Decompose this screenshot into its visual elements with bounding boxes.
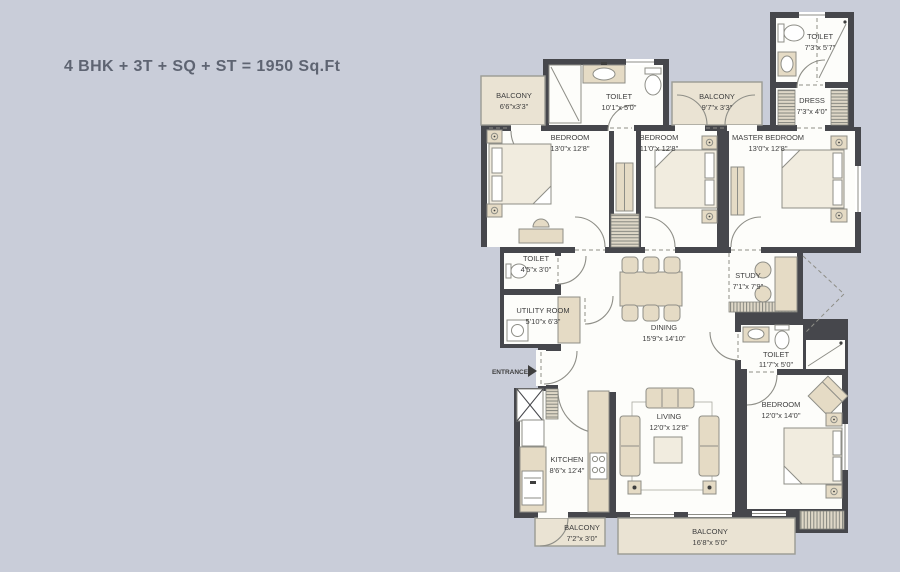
wc-tank-master (778, 24, 784, 42)
dining-chair (664, 257, 680, 273)
window-toilet-master (799, 12, 825, 18)
svg-text:11'0"x 12'8": 11'0"x 12'8" (640, 144, 679, 153)
svg-text:BALCONY: BALCONY (699, 92, 735, 101)
study-desk (775, 257, 797, 311)
svg-text:DRESS: DRESS (799, 96, 825, 105)
tap-kitchen (530, 481, 536, 484)
svg-text:7'2"x 3'0": 7'2"x 3'0" (567, 534, 598, 543)
svg-text:LIVING: LIVING (657, 412, 682, 421)
svg-text:KITCHEN: KITCHEN (551, 455, 584, 464)
dining-furniture (620, 257, 682, 321)
svg-text:STUDY: STUDY (735, 271, 760, 280)
balcony-n-door1-opening (675, 125, 705, 131)
sofa-three-seat (646, 388, 694, 408)
window-living-1 (630, 512, 674, 517)
wardrobe-dress-left (778, 90, 795, 125)
svg-text:10'1"x 5'0": 10'1"x 5'0" (602, 103, 637, 112)
balcony-main (618, 518, 795, 554)
svg-text:13'0"x 12'8": 13'0"x 12'8" (748, 144, 787, 153)
dining-chair (643, 305, 659, 321)
window-living-2 (688, 512, 732, 517)
svg-text:UTILITY ROOM: UTILITY ROOM (516, 306, 569, 315)
kitchen-shaft-hatch (546, 389, 558, 419)
svg-text:TOILET: TOILET (807, 32, 834, 41)
fridge (522, 420, 544, 446)
dining-chair (622, 257, 638, 273)
shower-head-common (839, 341, 842, 344)
wardrobe-bedroom4 (800, 511, 844, 529)
svg-text:13'0"x 12'8": 13'0"x 12'8" (550, 144, 589, 153)
svg-text:12'0"x 12'8": 12'0"x 12'8" (649, 423, 688, 432)
shower-head-master (843, 20, 846, 23)
window-bedroom4-south (752, 511, 786, 516)
pillow (492, 148, 502, 173)
floor-plan-page: 4 BHK + 3T + SQ + ST = 1950 Sq.Ft (0, 0, 900, 572)
wc-master (784, 25, 804, 41)
desk-bedroom1 (519, 229, 563, 243)
pillow (833, 431, 841, 455)
svg-text:7'3"x 5'7": 7'3"x 5'7" (805, 43, 836, 52)
wc-tank-powder (506, 264, 511, 278)
pillow (833, 180, 842, 205)
coffee-table (654, 437, 682, 463)
pillow (833, 153, 842, 178)
svg-text:15'9"x 14'10": 15'9"x 14'10" (642, 334, 686, 343)
dining-chair (622, 305, 638, 321)
entrance-marker: ENTRANCE (492, 365, 537, 377)
balcony-nw (481, 76, 545, 125)
svg-text:8'6"x 12'4": 8'6"x 12'4" (550, 466, 585, 475)
balcony-n-door2-opening (727, 125, 757, 131)
entrance-arrow-icon (528, 365, 537, 377)
svg-text:4'5"x 3'0": 4'5"x 3'0" (521, 265, 552, 274)
svg-text:BALCONY: BALCONY (692, 527, 728, 536)
svg-text:TOILET: TOILET (606, 92, 633, 101)
window-toilet-top (626, 59, 654, 65)
svg-text:BALCONY: BALCONY (564, 523, 600, 532)
floor-plan-drawing: ENTRANCE BALCONY 6'6"x3'3" TOILET 10'1"x… (0, 0, 900, 572)
svg-text:16'8"x 5'0": 16'8"x 5'0" (693, 538, 728, 547)
wc-tank-common (775, 325, 789, 330)
dining-table (620, 272, 682, 306)
basin-common (748, 329, 764, 339)
stove (590, 453, 607, 479)
svg-text:5'10"x 6'3": 5'10"x 6'3" (526, 317, 561, 326)
wc-tank-top (645, 68, 661, 74)
svg-text:DINING: DINING (651, 323, 677, 332)
balcony-kitchen-door-opening (538, 512, 568, 518)
svg-text:MASTER BEDROOM: MASTER BEDROOM (732, 133, 804, 142)
window-bedroom4-east (842, 424, 848, 470)
tap-top (601, 62, 607, 65)
dining-chair (643, 257, 659, 273)
svg-text:BEDROOM: BEDROOM (640, 133, 679, 142)
utility-counter (558, 297, 580, 343)
wc-top (645, 75, 661, 95)
wardrobe-lobby (611, 214, 639, 247)
kitchen-door-opening (558, 385, 600, 391)
wc-common (775, 331, 789, 349)
svg-text:7'1"x 7'9": 7'1"x 7'9" (733, 282, 764, 291)
basin-master (781, 56, 793, 72)
pillow (705, 153, 714, 178)
svg-text:11'7"x 5'0": 11'7"x 5'0" (759, 360, 794, 369)
entrance-label: ENTRANCE (492, 369, 529, 376)
svg-text:BEDROOM: BEDROOM (762, 400, 801, 409)
svg-text:BEDROOM: BEDROOM (551, 133, 590, 142)
window-master-east (855, 166, 861, 212)
svg-text:TOILET: TOILET (763, 350, 790, 359)
svg-text:12'0"x 14'0": 12'0"x 14'0" (761, 411, 800, 420)
svg-text:TOILET: TOILET (523, 254, 550, 263)
dining-chair (664, 305, 680, 321)
svg-text:6'6"x3'3": 6'6"x3'3" (500, 102, 529, 111)
pillow (705, 180, 714, 205)
pillow (833, 457, 841, 481)
sink (522, 471, 543, 505)
basin-top (593, 68, 615, 80)
svg-text:9'7"x 3'3": 9'7"x 3'3" (702, 103, 733, 112)
svg-text:BALCONY: BALCONY (496, 91, 532, 100)
svg-text:7'3"x 4'0": 7'3"x 4'0" (797, 107, 828, 116)
label-toilet-common: TOILET 11'7"x 5'0" (759, 350, 794, 369)
pillow (492, 176, 502, 201)
kitchen-counter-right (588, 391, 609, 512)
balcony-nw-door-opening (511, 125, 541, 131)
wardrobe-dress-right (831, 90, 848, 125)
